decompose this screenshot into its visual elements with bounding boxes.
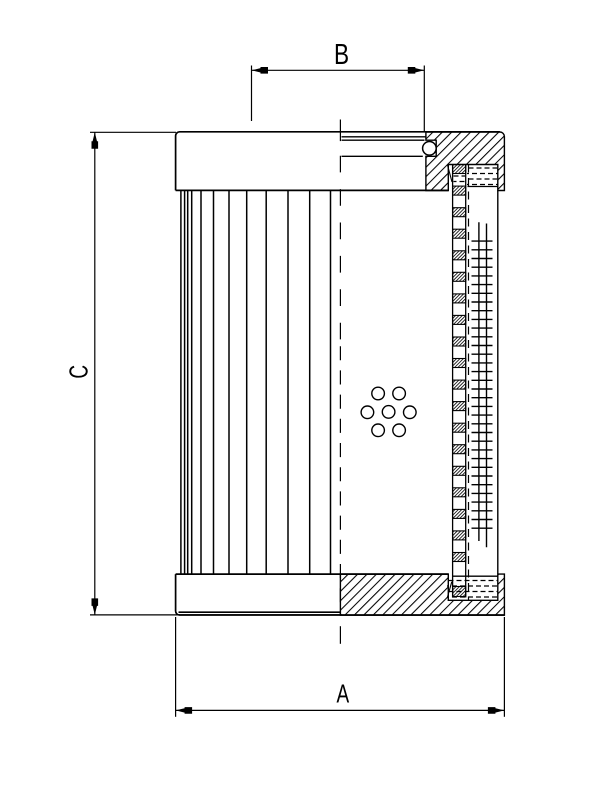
svg-text:B: B bbox=[334, 37, 349, 70]
svg-text:C: C bbox=[63, 365, 93, 379]
svg-text:A: A bbox=[336, 679, 349, 709]
